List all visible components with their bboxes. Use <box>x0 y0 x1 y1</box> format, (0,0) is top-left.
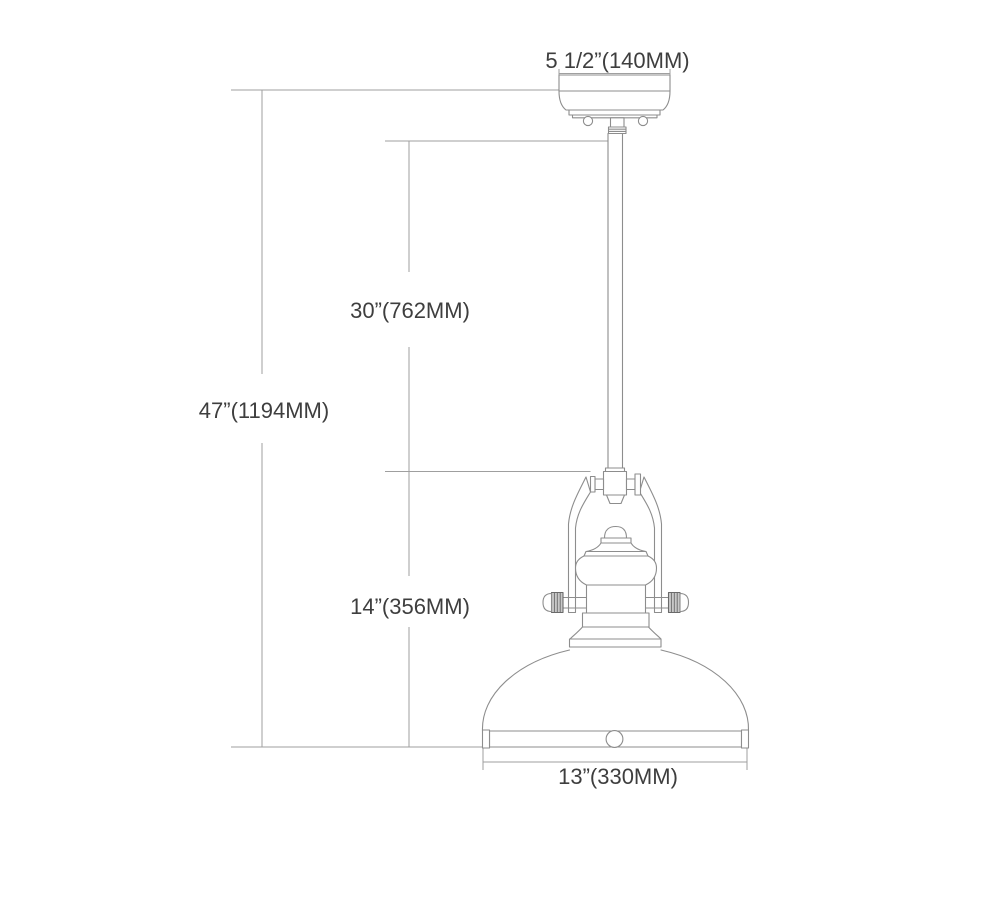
dome-right-profile <box>661 650 749 731</box>
label-fixture-height: 14”(356MM) <box>350 594 470 619</box>
label-canopy-width: 5 1/2”(140MM) <box>545 48 689 73</box>
shade-rim-cap-left <box>483 730 490 748</box>
stem-top <box>611 118 625 127</box>
socket-band <box>583 613 650 627</box>
dome-shade <box>482 650 748 748</box>
shade-rim-cap-right <box>742 730 749 748</box>
thumbscrew-cap-right <box>680 594 689 612</box>
diagram-canvas: 5 1/2”(140MM) 30”(762MM) 47”(1194MM) 14”… <box>0 0 1000 912</box>
shade-rim-knob <box>606 731 623 748</box>
collar <box>584 552 648 557</box>
plate-right <box>635 474 641 495</box>
finial-knob <box>605 527 627 539</box>
label-rod-length: 30”(762MM) <box>350 298 470 323</box>
canopy-ring <box>569 110 660 115</box>
pin-right <box>627 479 636 490</box>
bell-right <box>631 543 646 552</box>
block <box>604 472 627 496</box>
rod <box>608 134 623 469</box>
thumbscrew-cap-left <box>543 594 552 612</box>
plate-left <box>591 477 596 493</box>
bell-left <box>586 543 601 552</box>
funnel <box>607 495 625 504</box>
hanger-block <box>591 468 641 504</box>
socket-assembly <box>570 527 662 648</box>
dome-left-profile <box>482 650 569 731</box>
canopy-screw-right <box>638 116 647 125</box>
socket-cylinder <box>587 585 646 613</box>
neck-rim-ring <box>570 639 662 647</box>
label-overall-height: 47”(1194MM) <box>199 398 329 423</box>
label-shade-width: 13”(330MM) <box>558 764 678 789</box>
pin-left <box>595 479 604 490</box>
down-rod <box>608 118 626 468</box>
canopy-skirt <box>559 91 670 110</box>
canopy-plate <box>559 75 670 91</box>
fixture-drawing <box>482 75 748 748</box>
pendant-dimension-drawing: 5 1/2”(140MM) 30”(762MM) 47”(1194MM) 14”… <box>0 0 1000 912</box>
finial-flange <box>601 538 631 543</box>
shoulder <box>576 556 657 585</box>
coupler <box>609 127 627 134</box>
trumpet-flare <box>570 627 661 639</box>
canopy-screw-left <box>583 116 592 125</box>
